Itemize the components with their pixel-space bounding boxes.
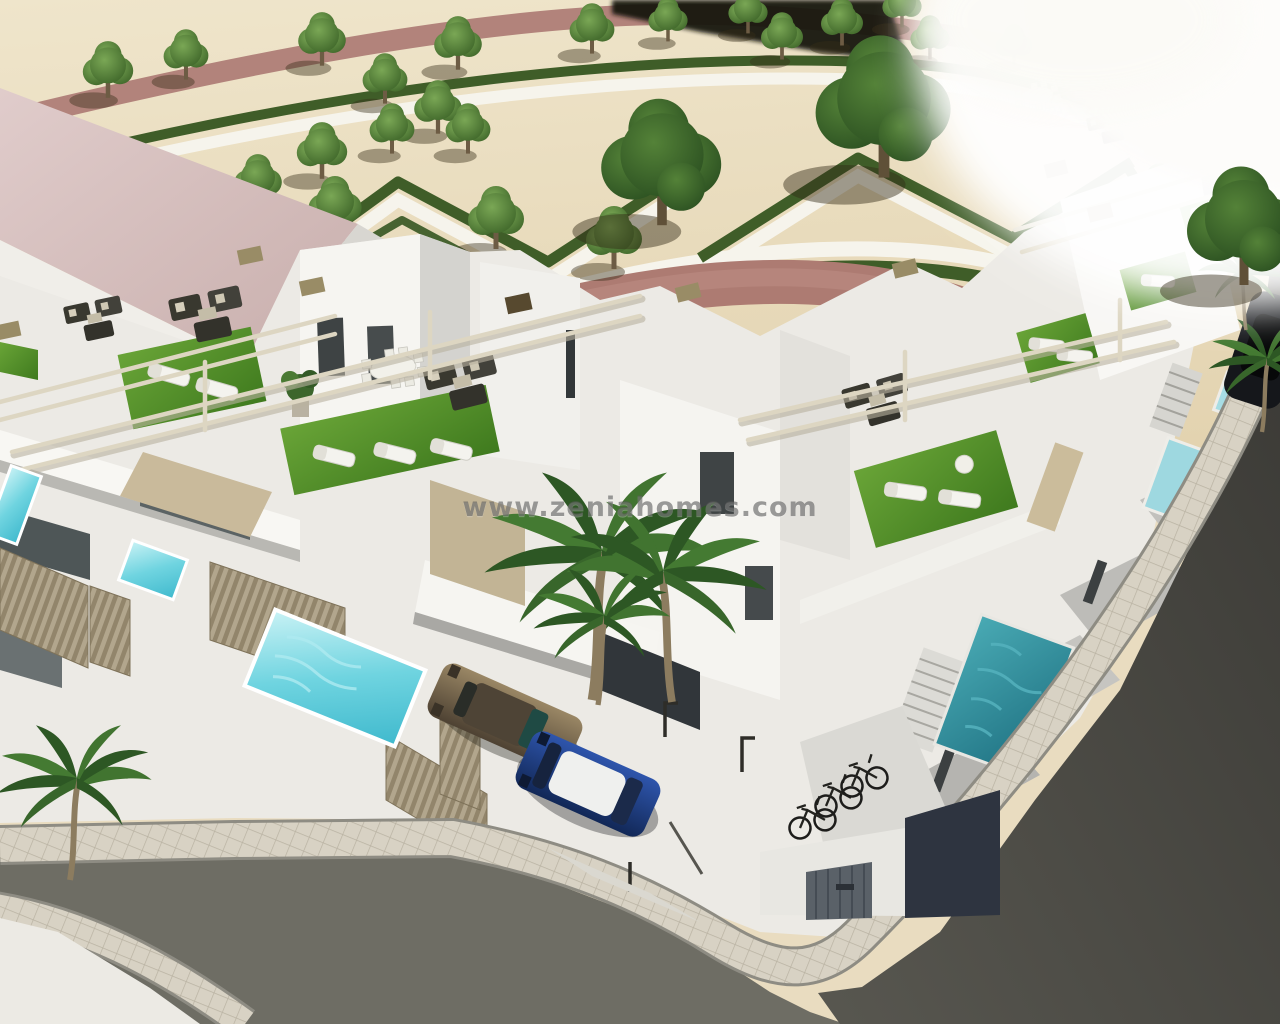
render-canvas: www.zeniahomes.com [0,0,1280,1024]
scene-svg [0,0,1280,1024]
